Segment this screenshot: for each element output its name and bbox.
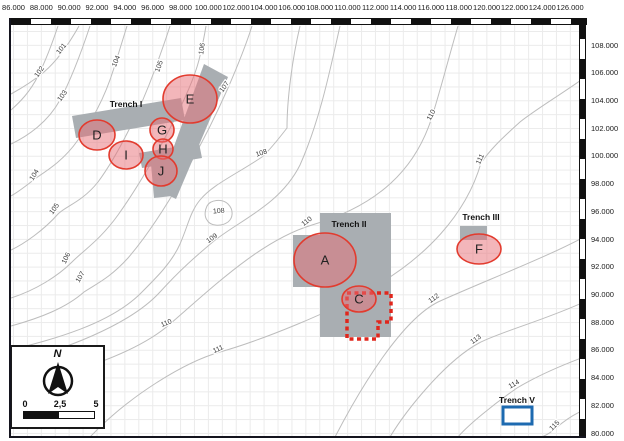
feature-E[interactable]: E — [163, 75, 217, 123]
contour-label-110: 110 — [160, 318, 173, 329]
top-axis-tick: 108.000 — [306, 3, 333, 12]
contour-label-108: 108 — [255, 148, 268, 158]
trench-5-label: Trench V — [499, 395, 535, 405]
right-axis-tick: 84.000 — [591, 373, 614, 382]
top-axis-tick: 92.000 — [86, 3, 109, 12]
contour-label-114: 114 — [508, 379, 521, 391]
contour-label-105: 105 — [154, 60, 165, 73]
top-axis-tick: 122.000 — [501, 3, 528, 12]
scale-tick-5: 5 — [93, 399, 98, 409]
right-axis-tick: 106.000 — [591, 68, 618, 77]
contour-line-115 — [541, 410, 584, 437]
top-axis-tick: 114.000 — [390, 3, 417, 12]
feature-label-G: G — [157, 123, 167, 138]
trench-1-label: Trench I — [110, 99, 143, 109]
feature-label-E: E — [186, 92, 195, 107]
right-axis-tick: 108.000 — [591, 41, 618, 50]
feature-A[interactable]: A — [294, 233, 356, 287]
contour-label-112: 112 — [428, 293, 441, 305]
top-axis-tick: 96.000 — [141, 3, 164, 12]
scale-bar-black-half — [24, 412, 59, 418]
right-axis-tick: 98.000 — [591, 179, 614, 188]
contour-label-108: 108 — [213, 208, 225, 216]
right-axis-tick: 100.000 — [591, 151, 618, 160]
frame-bottom-line — [9, 436, 586, 438]
north-arrow-icon — [12, 357, 103, 403]
right-axis-tick: 82.000 — [591, 401, 614, 410]
feature-label-C: C — [354, 292, 363, 307]
scale-tick-25: 2,5 — [54, 399, 67, 409]
top-axis-tick: 100.000 — [195, 3, 222, 12]
contour-label-107: 107 — [75, 270, 87, 284]
right-axis-tick: 90.000 — [591, 290, 614, 299]
feature-F[interactable]: F — [457, 234, 501, 264]
top-axis-tick: 88.000 — [30, 3, 53, 12]
top-axis-tick: 118.000 — [445, 3, 472, 12]
contour-label-111: 111 — [475, 153, 486, 166]
feature-D[interactable]: D — [79, 120, 115, 150]
top-axis-tick: 98.000 — [169, 3, 192, 12]
top-axis-tick: 124.000 — [529, 3, 556, 12]
frame-top-bar — [10, 18, 587, 25]
top-axis-tick: 94.000 — [113, 3, 136, 12]
contour-label-115: 115 — [549, 419, 562, 432]
contour-line-102 — [11, 26, 58, 110]
contour-label-113: 113 — [470, 334, 483, 346]
top-axis-tick: 90.000 — [58, 3, 81, 12]
site-map: DEGHIJACF 101102103104105106107104105106… — [0, 0, 624, 441]
contour-label-111: 111 — [212, 344, 225, 355]
contour-label-110: 110 — [426, 109, 437, 122]
right-axis-tick: 92.000 — [591, 262, 614, 271]
top-axis-tick: 86.000 — [2, 3, 25, 12]
contour-label-104: 104 — [111, 55, 122, 69]
trench-2-label: Trench II — [332, 219, 367, 229]
feature-C[interactable]: C — [342, 286, 376, 312]
contour-label-106: 106 — [198, 42, 207, 55]
legend-box: N 0 2,5 5 — [10, 345, 105, 429]
contour-label-103: 103 — [57, 89, 69, 103]
right-axis-tick: 88.000 — [591, 318, 614, 327]
feature-label-D: D — [92, 128, 101, 143]
right-axis-tick: 104.000 — [591, 96, 618, 105]
frame-left-line — [9, 18, 11, 438]
contour-line-113 — [390, 302, 584, 437]
scale-labels: 0 2,5 5 — [12, 399, 107, 409]
right-axis-tick: 80.000 — [591, 429, 614, 438]
trench-5-area[interactable] — [503, 407, 532, 424]
trench-3-label: Trench III — [462, 212, 499, 222]
scale-bar — [23, 411, 95, 419]
feature-label-A: A — [321, 253, 330, 268]
top-axis-tick: 104.000 — [250, 3, 277, 12]
top-axis-tick: 112.000 — [362, 3, 389, 12]
feature-label-H: H — [158, 142, 167, 157]
right-axis-tick: 94.000 — [591, 235, 614, 244]
top-axis-tick: 116.000 — [418, 3, 445, 12]
feature-label-F: F — [475, 242, 483, 257]
contour-label-101: 101 — [55, 42, 68, 56]
feature-label-J: J — [158, 164, 165, 179]
right-axis-tick: 86.000 — [591, 345, 614, 354]
contour-label-105: 105 — [49, 202, 61, 216]
feature-J[interactable]: J — [145, 156, 177, 186]
top-axis-tick: 126.000 — [557, 3, 584, 12]
top-axis-tick: 102.000 — [223, 3, 250, 12]
contour-label-104: 104 — [29, 168, 41, 182]
contour-label-110: 110 — [301, 216, 314, 228]
feature-label-I: I — [124, 148, 128, 163]
top-axis-tick: 110.000 — [334, 3, 361, 12]
top-axis-tick: 106.000 — [278, 3, 305, 12]
right-axis-tick: 96.000 — [591, 207, 614, 216]
feature-I[interactable]: I — [109, 141, 143, 169]
right-axis-tick: 102.000 — [591, 124, 618, 133]
scale-tick-0: 0 — [22, 399, 27, 409]
frame-right-bar — [579, 18, 586, 438]
top-axis-tick: 120.000 — [473, 3, 500, 12]
